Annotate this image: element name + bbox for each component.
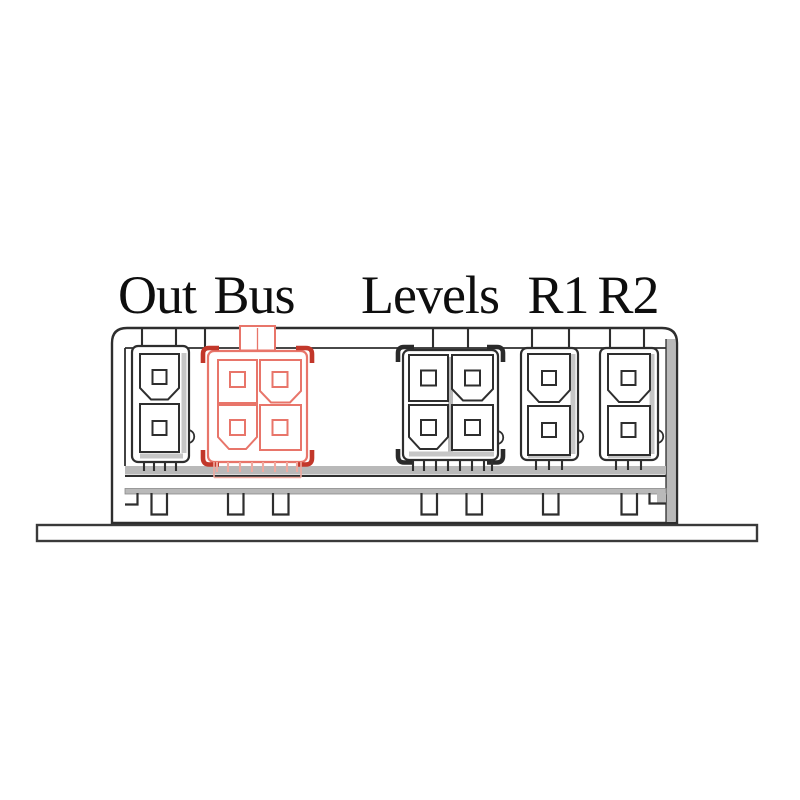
levels-pin-bl [421,420,436,435]
r2-pin-bottom [622,423,636,437]
bus-pin-bl [230,420,245,435]
r1-pin-top [542,371,556,385]
connector-r2 [600,348,663,470]
r1-pin-bottom [542,423,556,437]
right-step-shadow [657,493,666,503]
label-levels: Levels [361,265,499,325]
bus-pin-tr [273,372,288,387]
panel-drawing: Out Bus Levels R1 R2 [0,0,800,800]
bus-pin-br [273,420,288,435]
connector-panel-figure: Out Bus Levels R1 R2 [0,0,800,800]
bus-pin-tl [230,372,245,387]
connector-labels: Out Bus Levels R1 R2 [118,265,659,325]
out-pin-bottom [153,421,167,435]
label-out: Out [118,265,197,325]
connector-r1 [521,348,583,470]
base-plate [37,525,757,541]
levels-pin-tl [421,371,436,386]
lower-rail [125,489,666,495]
connector-levels [398,347,503,471]
connector-out [132,346,194,471]
right-wall-shadow [666,339,676,522]
label-r1: R1 [527,265,588,325]
label-bus: Bus [213,265,294,325]
levels-pin-br [465,420,480,435]
pcb-strip [125,466,666,475]
r2-pin-top [622,371,636,385]
label-r2: R2 [597,265,658,325]
out-pin-top [153,370,167,384]
levels-pin-tr [465,371,480,386]
